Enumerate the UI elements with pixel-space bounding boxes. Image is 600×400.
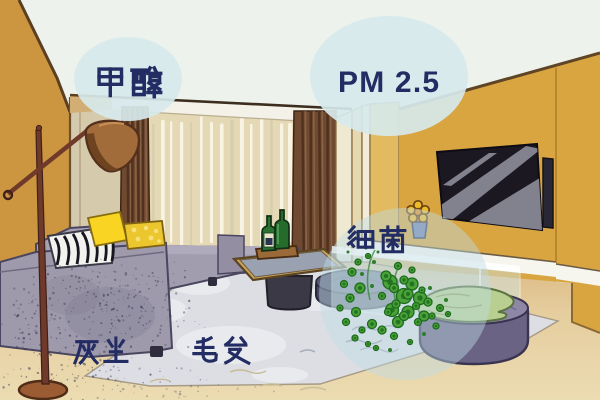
svg-text:PM 2.5: PM 2.5: [338, 66, 440, 99]
